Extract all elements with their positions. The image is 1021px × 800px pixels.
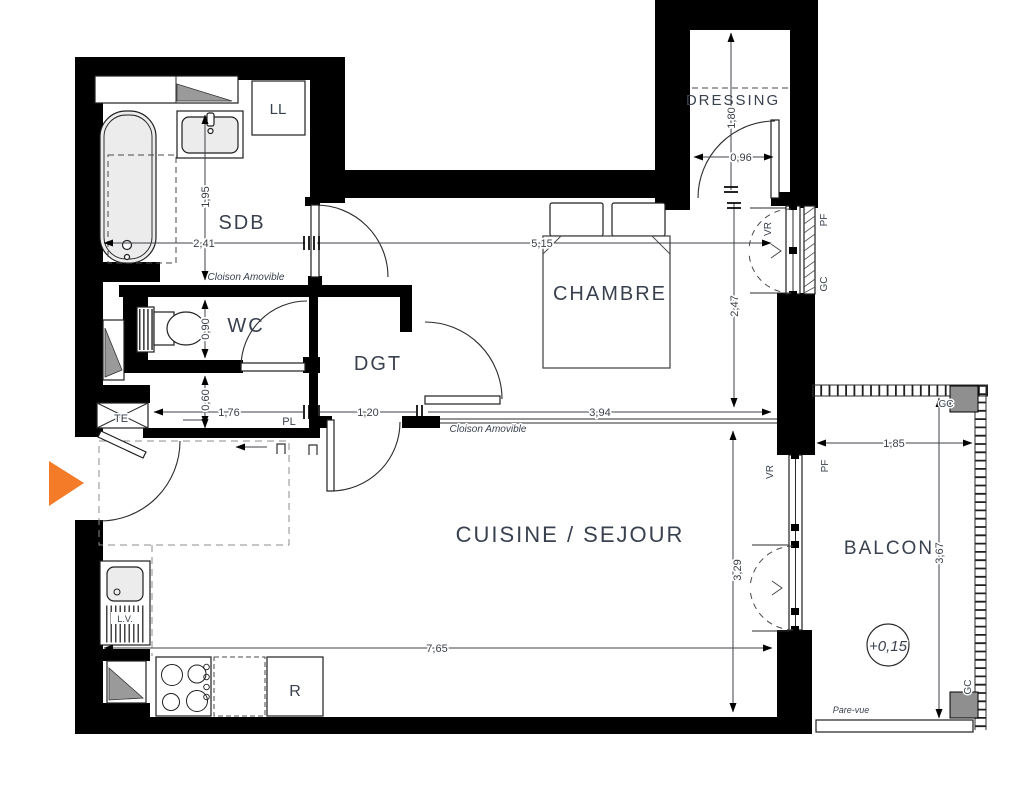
pillow <box>550 203 603 236</box>
dim-balcon-depth: 3,67 <box>934 542 946 563</box>
room-label-dgt: DGT <box>354 353 402 375</box>
label-french-window: PF <box>819 214 830 227</box>
outlet-icon <box>309 445 317 455</box>
dim-dressing-width: 0,96 <box>730 152 751 164</box>
room-label-chambre: CHAMBRE <box>553 283 667 305</box>
kitchen-sink <box>107 567 143 601</box>
dim-sdb-width: 2,41 <box>193 238 214 250</box>
label-guardrail: GC <box>939 399 954 410</box>
dim-dgt-width: 1,20 <box>357 407 378 419</box>
sdb-door-swing <box>316 205 388 277</box>
label-fridge: R <box>289 683 301 700</box>
floor-plan: SDB WC DGT CHAMBRE DRESSING CUISINE / SE… <box>0 0 1021 800</box>
chambre-window <box>749 203 815 298</box>
label-roller-shutter: VR <box>765 465 776 479</box>
window-swing-chevron <box>771 244 781 258</box>
dim-cuisine-depth: 3,29 <box>732 559 744 580</box>
closet-arrow <box>183 420 205 428</box>
removable-partition-line <box>440 419 777 423</box>
pillow <box>612 203 665 236</box>
label-removable-partition: Cloison Amovible <box>450 424 527 435</box>
window-swing-chevron <box>772 581 782 595</box>
label-closet: PL <box>282 416 295 428</box>
railing-post <box>950 692 978 718</box>
dim-wc-depth: 0,90 <box>200 318 212 339</box>
label-washing-machine: LL <box>270 101 287 118</box>
worktop <box>214 657 265 716</box>
label-removable-partition: Cloison Amovible <box>208 272 285 283</box>
cuisine-window <box>750 452 802 633</box>
railing-post <box>950 386 978 412</box>
label-balcony-level: +0,15 <box>869 638 908 655</box>
label-guardrail: GC <box>819 277 830 292</box>
label-roller-shutter: VR <box>763 222 774 236</box>
dim-balcon-width: 1,85 <box>883 438 904 450</box>
bathtub-faucet <box>123 241 132 250</box>
dim-dressing-depth: 1,80 <box>726 107 738 128</box>
chambre-door-leaf <box>425 396 500 404</box>
room-label-wc: WC <box>227 315 264 337</box>
entry-door-leaf <box>98 431 146 458</box>
entrance-arrow-icon <box>49 461 84 506</box>
dim-chambre-depth: 2,47 <box>729 295 741 316</box>
walls <box>75 0 818 734</box>
wc-door-leaf <box>241 363 305 371</box>
chambre-door-swing <box>425 322 502 399</box>
dim-chambre-south-width: 3,94 <box>589 407 610 419</box>
dim-sdb-depth: 1,95 <box>200 186 212 207</box>
label-dishwasher: L.V. <box>117 614 132 624</box>
label-privacy-screen: Pare-vue <box>833 705 870 715</box>
room-label-cuisine-sejour: CUISINE / SEJOUR <box>456 522 685 547</box>
washbasin-faucet <box>207 113 214 126</box>
label-electrical-panel: TE <box>114 413 128 425</box>
dim-chambre-width: 5,15 <box>531 238 552 250</box>
dim-cuisine-width: 7,65 <box>426 643 447 655</box>
dressing-door-leaf <box>771 120 779 198</box>
room-label-sdb: SDB <box>218 212 265 234</box>
dim-entry-closet-width: 1,76 <box>218 407 239 419</box>
label-french-window: PF <box>820 460 831 473</box>
label-guardrail: GC <box>963 680 974 695</box>
dgt-door-swing <box>331 422 400 491</box>
dim-entry-closet-depth: 0,60 <box>200 389 212 410</box>
room-label-balcon: BALCON <box>844 538 934 559</box>
sdb-door-leaf <box>311 205 319 277</box>
outlet-icon <box>277 444 285 454</box>
room-label-dressing: DRESSING <box>686 92 780 109</box>
privacy-screen <box>816 720 973 732</box>
entry-clearance <box>99 441 289 545</box>
dgt-door-leaf <box>327 420 334 491</box>
